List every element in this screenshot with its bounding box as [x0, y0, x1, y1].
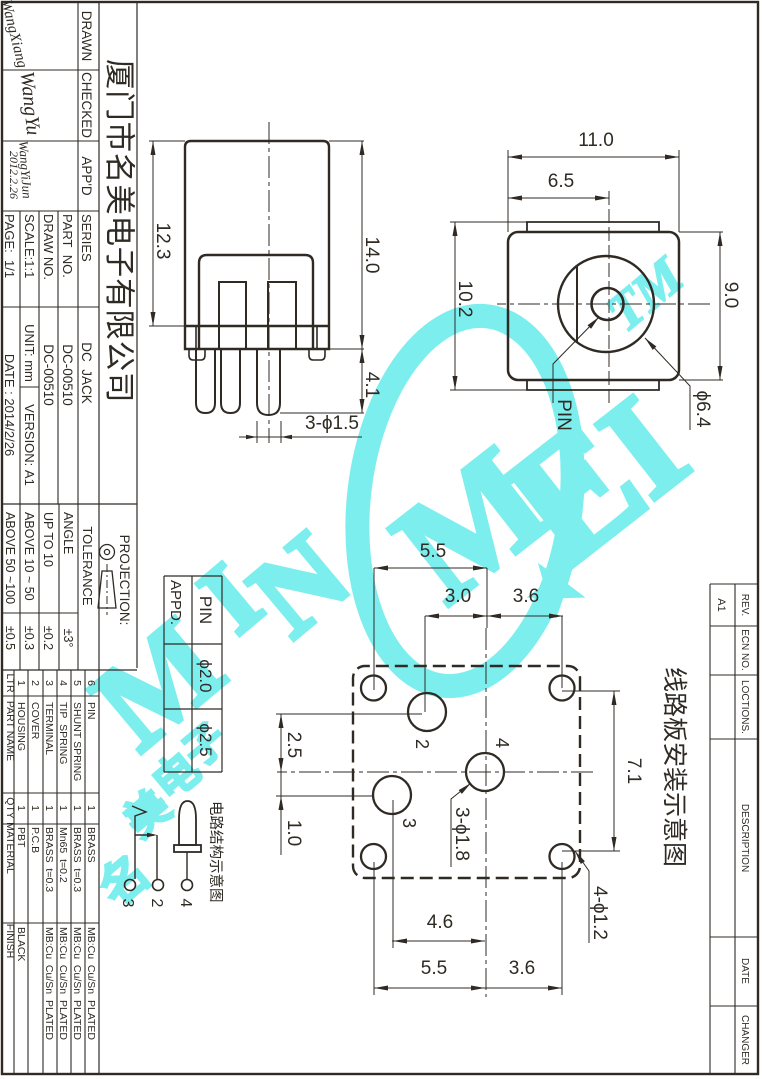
- svg-text:UP TO 10: UP TO 10: [41, 512, 55, 567]
- svg-text:BRASS t=0.3: BRASS t=0.3: [43, 827, 55, 892]
- svg-text:ANGLE: ANGLE: [61, 512, 75, 554]
- svg-text:5: 5: [71, 680, 83, 686]
- svg-text:ECN NO.: ECN NO.: [739, 629, 750, 671]
- svg-text:9.0: 9.0: [720, 282, 741, 308]
- svg-text:3-ϕ1.5: 3-ϕ1.5: [305, 413, 359, 434]
- svg-text:4: 4: [57, 680, 69, 686]
- svg-text:A1: A1: [715, 598, 727, 611]
- svg-text:6.5: 6.5: [548, 171, 574, 192]
- svg-text:LOCTIONS.: LOCTIONS.: [739, 680, 750, 734]
- svg-text:MB:Cu Cu/Sn PLATED: MB:Cu Cu/Sn PLATED: [57, 927, 69, 1040]
- svg-text:DATE : 2014/2/26: DATE : 2014/2/26: [2, 354, 17, 456]
- svg-text:6: 6: [85, 680, 97, 686]
- svg-text:P.C.B: P.C.B: [29, 827, 41, 853]
- svg-text:MB:Cu Cu/Sn PLATED: MB:Cu Cu/Sn PLATED: [85, 927, 97, 1040]
- svg-text:APP'D: APP'D: [79, 156, 94, 196]
- svg-text:DC-00510: DC-00510: [41, 344, 56, 406]
- svg-text:TOLERANCE: TOLERANCE: [80, 526, 95, 606]
- svg-text:2012.2.26: 2012.2.26: [7, 151, 21, 199]
- svg-text:3.6: 3.6: [509, 958, 535, 979]
- svg-text:5.5: 5.5: [421, 958, 447, 979]
- svg-text:1.0: 1.0: [283, 820, 304, 846]
- svg-text:12.3: 12.3: [152, 223, 173, 260]
- svg-text:3: 3: [399, 818, 419, 828]
- svg-text:3: 3: [43, 680, 55, 686]
- svg-text:1: 1: [71, 805, 83, 811]
- svg-text:1: 1: [85, 805, 97, 811]
- svg-text:±0.2: ±0.2: [41, 626, 55, 650]
- svg-text:PIN: PIN: [85, 702, 97, 720]
- svg-text:4-ϕ1.2: 4-ϕ1.2: [589, 886, 610, 940]
- svg-text:1: 1: [29, 805, 41, 811]
- svg-text:PAGE: 1/1: PAGE: 1/1: [2, 214, 17, 278]
- svg-text:MB:Cu Cu/Sn PLATED: MB:Cu Cu/Sn PLATED: [43, 927, 55, 1040]
- svg-text:2: 2: [148, 899, 165, 908]
- svg-text:ABOVE 50 ~100: ABOVE 50 ~100: [3, 512, 17, 604]
- svg-text:Mn65 t=0.2: Mn65 t=0.2: [57, 827, 69, 883]
- svg-text:MB:Cu Cu/Sn PLATED: MB:Cu Cu/Sn PLATED: [71, 927, 83, 1040]
- svg-text:4: 4: [177, 899, 194, 908]
- svg-text:±3°: ±3°: [61, 629, 75, 648]
- svg-text:PROJECTION:: PROJECTION:: [117, 535, 132, 626]
- svg-text:3-ϕ1.8: 3-ϕ1.8: [451, 807, 472, 861]
- svg-text:VERSION: A1: VERSION: A1: [22, 404, 37, 486]
- svg-text:SCALE:1:1: SCALE:1:1: [22, 214, 37, 278]
- svg-text:2.5: 2.5: [283, 732, 304, 758]
- svg-text:PIN: PIN: [196, 596, 215, 624]
- svg-text:SHUNT SPRING: SHUNT SPRING: [71, 702, 83, 781]
- svg-text:2: 2: [412, 739, 432, 749]
- svg-text:LTR: LTR: [4, 673, 16, 692]
- svg-text:3: 3: [119, 899, 136, 908]
- svg-text:10.2: 10.2: [454, 281, 475, 318]
- svg-text:DESCRIPTION: DESCRIPTION: [739, 804, 750, 872]
- svg-text:CHANGER: CHANGER: [739, 1015, 750, 1065]
- svg-text:14.0: 14.0: [361, 237, 382, 274]
- svg-text:4.6: 4.6: [427, 912, 453, 933]
- svg-text:DRAWN: DRAWN: [79, 11, 94, 62]
- svg-text:QTY: QTY: [4, 797, 16, 819]
- svg-text:DC-00510: DC-00510: [60, 344, 75, 406]
- svg-text:电路结构示意图: 电路结构示意图: [207, 801, 225, 903]
- svg-text:APPD.: APPD.: [167, 580, 184, 625]
- svg-text:2: 2: [29, 680, 41, 686]
- svg-text:ϕ2.5: ϕ2.5: [196, 723, 215, 756]
- svg-text:SERIES: SERIES: [79, 214, 94, 262]
- svg-text:UNIT: mm: UNIT: mm: [22, 324, 37, 382]
- svg-text:4: 4: [492, 738, 512, 748]
- svg-text:TIP SPRING: TIP SPRING: [57, 702, 69, 764]
- svg-text:COVER: COVER: [29, 702, 41, 740]
- svg-text:BRASS t=0.3: BRASS t=0.3: [71, 827, 83, 892]
- svg-text:BRASS: BRASS: [85, 827, 97, 863]
- svg-text:TERMINAL: TERMINAL: [43, 702, 55, 755]
- svg-text:5.5: 5.5: [420, 541, 446, 562]
- svg-text:MATERIAL: MATERIAL: [4, 822, 16, 874]
- svg-text:3.6: 3.6: [513, 586, 539, 607]
- svg-text:PIN: PIN: [553, 399, 574, 431]
- svg-text:PART NAME: PART NAME: [4, 701, 16, 761]
- svg-text:DC JACK: DC JACK: [79, 342, 94, 404]
- svg-text:1: 1: [43, 805, 55, 811]
- svg-text:ϕ6.4: ϕ6.4: [692, 390, 713, 427]
- svg-text:CHECKED: CHECKED: [79, 72, 94, 138]
- svg-text:DRAW NO.: DRAW NO.: [41, 214, 56, 280]
- svg-text:DATE: DATE: [739, 958, 750, 984]
- svg-text:±0.3: ±0.3: [22, 626, 36, 650]
- svg-text:ABOVE 10 ~ 50: ABOVE 10 ~ 50: [22, 512, 36, 601]
- svg-text:7.1: 7.1: [623, 758, 644, 784]
- svg-text:REV.: REV.: [739, 594, 750, 616]
- svg-text:11.0: 11.0: [578, 130, 614, 151]
- svg-text:4.1: 4.1: [361, 372, 382, 398]
- svg-text:PART NO.: PART NO.: [60, 214, 75, 278]
- svg-text:±0.5: ±0.5: [3, 626, 17, 650]
- svg-text:厦门市名美电子有限公司: 厦门市名美电子有限公司: [102, 59, 136, 403]
- svg-text:ϕ2.0: ϕ2.0: [196, 659, 215, 692]
- svg-text:3.0: 3.0: [445, 586, 471, 607]
- svg-text:线路板安装示意图: 线路板安装示意图: [660, 667, 688, 867]
- svg-text:1: 1: [57, 805, 69, 811]
- svg-text:FINISH: FINISH: [4, 924, 16, 958]
